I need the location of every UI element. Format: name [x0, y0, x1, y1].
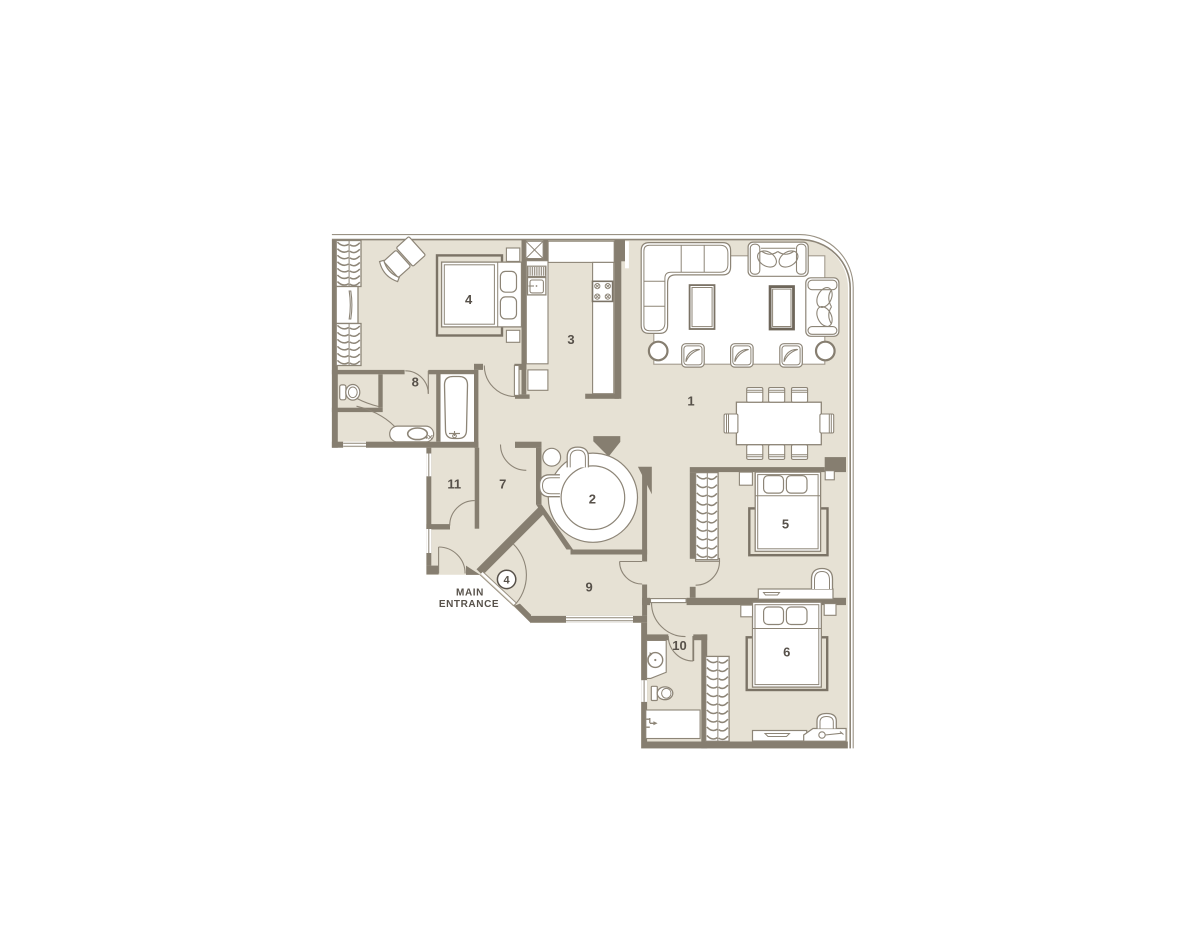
svg-text:4: 4	[465, 292, 473, 307]
svg-text:11: 11	[447, 476, 461, 491]
svg-text:10: 10	[672, 638, 686, 653]
svg-text:9: 9	[585, 580, 592, 595]
svg-text:MAIN: MAIN	[456, 588, 484, 599]
svg-text:2: 2	[589, 492, 596, 507]
svg-text:7: 7	[499, 476, 506, 491]
svg-text:1: 1	[687, 393, 694, 408]
svg-text:5: 5	[782, 517, 789, 532]
svg-text:6: 6	[783, 645, 790, 660]
svg-text:8: 8	[412, 375, 419, 390]
svg-text:3: 3	[567, 332, 574, 347]
svg-text:ENTRANCE: ENTRANCE	[439, 599, 499, 610]
svg-text:4: 4	[504, 575, 511, 587]
